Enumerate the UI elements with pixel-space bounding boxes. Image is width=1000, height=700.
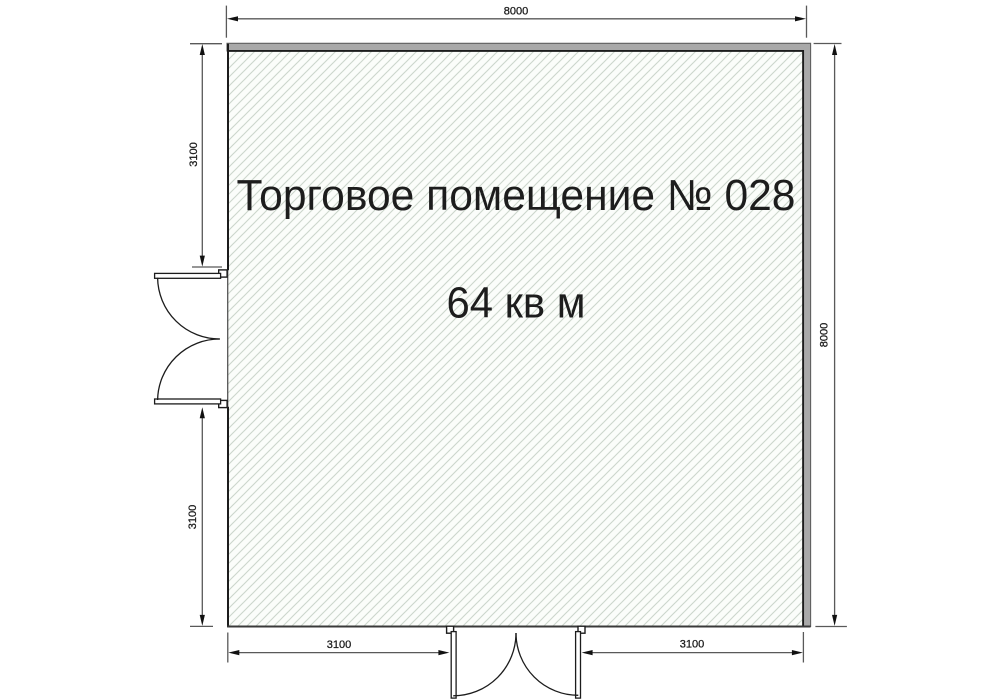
svg-text:3100: 3100 [187,505,199,529]
svg-text:3100: 3100 [188,142,200,166]
svg-text:8000: 8000 [504,6,528,18]
svg-text:3100: 3100 [327,639,351,651]
svg-text:64 кв м: 64 кв м [447,280,586,328]
svg-text:8000: 8000 [819,323,831,347]
svg-text:Торговое помещение № 028: Торговое помещение № 028 [237,172,796,220]
svg-text:3100: 3100 [680,638,704,650]
